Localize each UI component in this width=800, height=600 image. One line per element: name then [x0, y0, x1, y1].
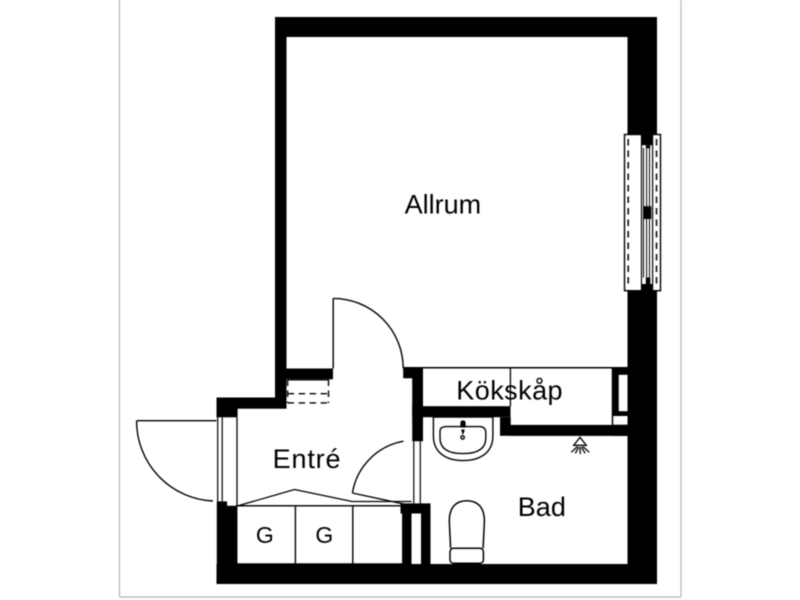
svg-text:Bad: Bad [518, 492, 566, 522]
svg-text:Allrum: Allrum [405, 189, 482, 219]
svg-text:Entré: Entré [273, 444, 342, 474]
svg-text:Kökskåp: Kökskåp [456, 375, 563, 405]
svg-text:G: G [256, 522, 274, 548]
svg-text:G: G [315, 522, 333, 548]
